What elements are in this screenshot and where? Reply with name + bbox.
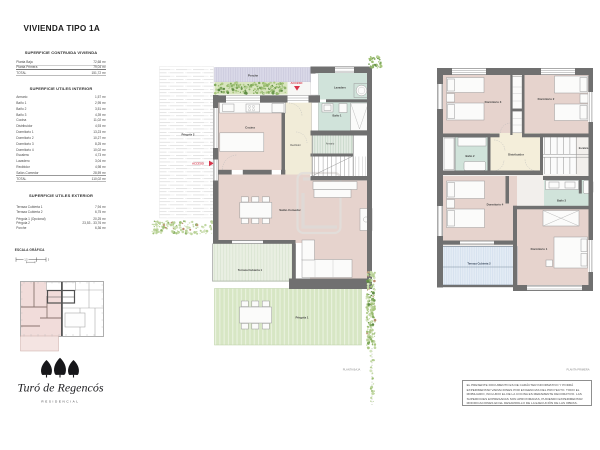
svg-text:ACCESO: ACCESO xyxy=(291,81,304,85)
svg-text:PLANTA BAJA: PLANTA BAJA xyxy=(343,368,361,372)
svg-text:Dormitorio 4: Dormitorio 4 xyxy=(487,202,504,206)
svg-text:Recibidor: Recibidor xyxy=(290,144,301,147)
svg-text:Baño 1: Baño 1 xyxy=(333,114,342,118)
svg-text:Armario: Armario xyxy=(326,143,335,146)
svg-text:Terraza Cubierta 1: Terraza Cubierta 1 xyxy=(238,268,263,272)
svg-text:ACCESO: ACCESO xyxy=(192,161,205,165)
svg-text:Porche: Porche xyxy=(248,74,259,78)
svg-text:1,5: 1,5 xyxy=(24,260,28,262)
svg-text:Dormitorio 3: Dormitorio 3 xyxy=(485,100,502,104)
svg-text:Salón-Comedor: Salón-Comedor xyxy=(279,208,301,212)
svg-text:Escalera: Escalera xyxy=(579,148,589,150)
svg-text:RESIDENCIAL: RESIDENCIAL xyxy=(41,400,79,404)
svg-text:5: 5 xyxy=(48,260,50,262)
svg-text:Lavadero: Lavadero xyxy=(334,86,346,90)
svg-text:Dormitorio 1: Dormitorio 1 xyxy=(531,247,548,251)
svg-text:Dormitorio 2: Dormitorio 2 xyxy=(538,97,555,101)
svg-text:PLANTA PRIMERA: PLANTA PRIMERA xyxy=(566,368,589,372)
svg-text:Baño 2: Baño 2 xyxy=(466,154,475,158)
svg-text:Terraza Cubierta 2: Terraza Cubierta 2 xyxy=(467,262,491,266)
svg-text:Cocina: Cocina xyxy=(245,126,255,130)
svg-text:Baño 3: Baño 3 xyxy=(557,199,566,203)
svg-text:Distribuidor: Distribuidor xyxy=(508,153,525,157)
svg-text:Turó de Regencós: Turó de Regencós xyxy=(18,381,104,395)
svg-text:Pérgola 1: Pérgola 1 xyxy=(295,316,308,320)
svg-text:Pérgola 2: Pérgola 2 xyxy=(181,133,194,137)
